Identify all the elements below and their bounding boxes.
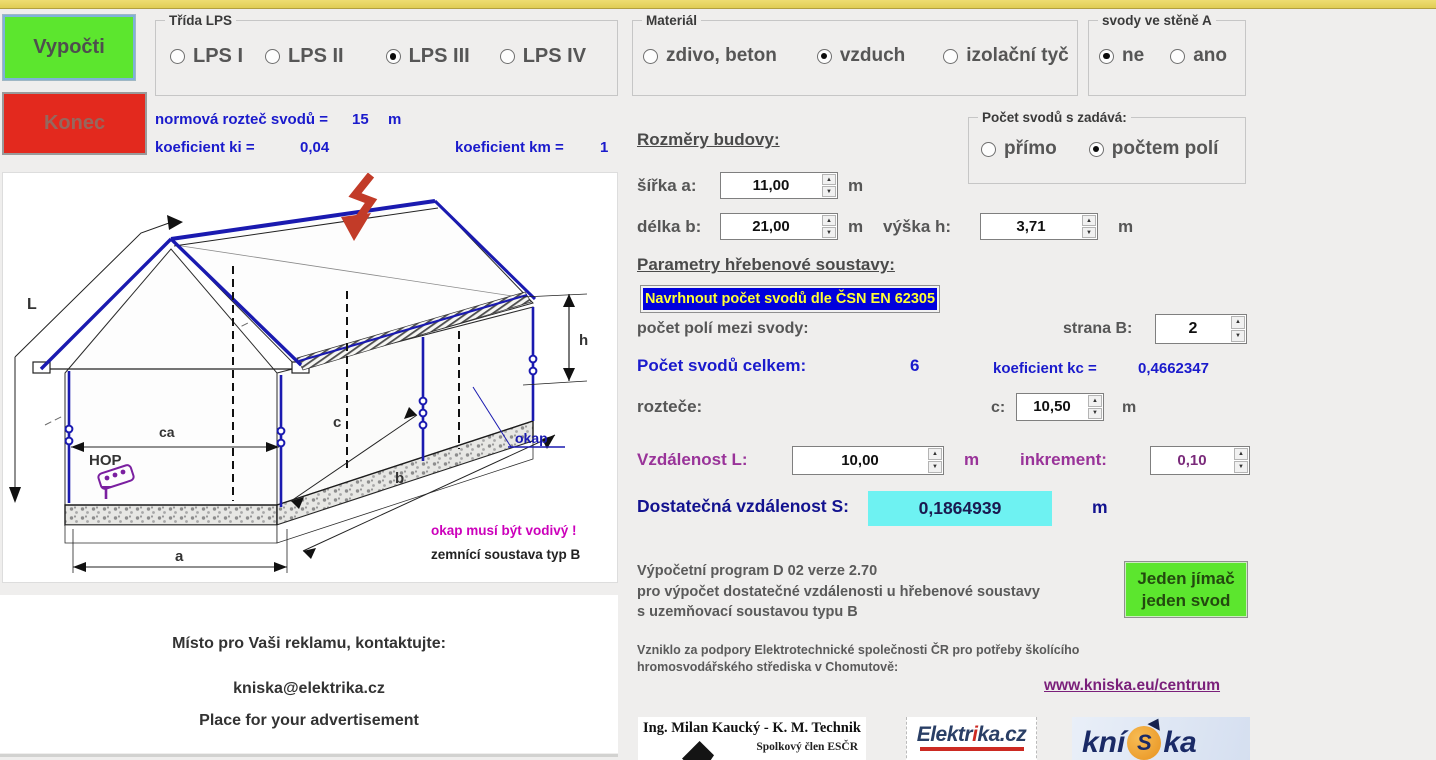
grounding-note: zemnící soustava typ B [431, 547, 581, 562]
radio-material-insulating-rod[interactable]: izolační tyč [943, 45, 1068, 67]
kniska-centrum-link[interactable]: www.kniska.eu/centrum [1044, 677, 1220, 695]
radio-label: počtem polí [1112, 138, 1219, 160]
bottom-divider [0, 754, 618, 757]
radio-icon [1089, 142, 1104, 157]
km-label: koeficient km = [455, 139, 564, 156]
width-spinner [821, 173, 837, 198]
spin-up-button[interactable] [1234, 448, 1248, 460]
program-line-2: pro výpočet dostatečné vzdálenosti u hře… [637, 584, 1040, 600]
app-window: Vypočti Konec Třída LPS LPS I LPS II LPS… [0, 0, 1436, 760]
side-b-value[interactable]: 2 [1156, 315, 1230, 343]
side-b-label: strana B: [1063, 320, 1132, 338]
width-unit: m [848, 176, 863, 196]
radio-mode-direct[interactable]: přímo [981, 138, 1057, 160]
separation-distance-unit: m [1092, 497, 1108, 518]
radio-label: přímo [1004, 138, 1057, 160]
spin-down-button[interactable] [1234, 461, 1248, 473]
building-diagram-panel: L h ca c b [2, 172, 618, 583]
height-input[interactable]: 3,71 [980, 213, 1098, 240]
c-label: c: [991, 399, 1005, 417]
support-line-1: Vzniklo za podpory Elektrotechnické spol… [637, 643, 1079, 657]
program-line-1: Výpočetní program D 02 verze 2.70 [637, 563, 877, 579]
kniska-ball-icon: S [1127, 726, 1161, 760]
increment-spinner [1233, 447, 1249, 474]
increment-value[interactable]: 0,10 [1151, 447, 1233, 474]
radio-material-air[interactable]: vzduch [817, 45, 905, 67]
height-value[interactable]: 3,71 [981, 214, 1081, 239]
radio-wall-no[interactable]: ne [1099, 45, 1144, 67]
radio-lps-iv[interactable]: LPS IV [500, 45, 586, 68]
exit-button[interactable]: Konec [2, 92, 147, 155]
elektrika-red-bar [920, 747, 1024, 751]
km-technik-title: Ing. Milan Kaucký - K. M. Technik [638, 717, 866, 737]
dim-L-label: L [27, 296, 37, 313]
ki-value: 0,04 [300, 139, 329, 156]
spin-down-button[interactable] [1231, 330, 1245, 343]
total-conductors-label: Počet svodů celkem: [637, 356, 806, 376]
length-value[interactable]: 21,00 [721, 214, 821, 239]
window-titlebar[interactable] [0, 0, 1436, 9]
increment-label: inkrement: [1020, 450, 1107, 470]
building-diagram: L h ca c b [3, 173, 617, 582]
separation-distance-label: Dostatečná vzdálenost S: [637, 496, 849, 517]
wall-conductors-group: svody ve stěně A ne ano [1088, 20, 1246, 96]
spin-down-button[interactable] [1082, 227, 1096, 238]
distance-l-input[interactable]: 10,00 [792, 446, 944, 475]
spin-down-button[interactable] [928, 461, 942, 473]
spin-up-button[interactable] [1231, 316, 1245, 329]
height-unit: m [1118, 217, 1133, 237]
radio-icon [265, 49, 280, 64]
kc-value: 0,4662347 [1138, 360, 1209, 377]
side-b-input[interactable]: 2 [1155, 314, 1247, 344]
radio-label: vzduch [840, 45, 905, 67]
propose-conductors-button[interactable]: Navrhnout počet svodů dle ČSN EN 62305 [640, 285, 940, 313]
spacings-label: rozteče: [637, 397, 702, 417]
kniska-wordmark: kní S ka [1082, 726, 1197, 760]
distance-l-unit: m [964, 450, 979, 470]
distance-l-spinner [927, 447, 943, 474]
dim-ca-label: ca [159, 424, 175, 440]
wall-conductors-legend: svody ve stěně A [1098, 13, 1216, 28]
radio-wall-yes[interactable]: ano [1170, 45, 1227, 67]
kniska-bird-icon [1148, 717, 1165, 731]
spin-up-button[interactable] [822, 215, 836, 226]
radio-label: LPS I [193, 45, 243, 68]
dim-a-label: a [175, 548, 184, 565]
radio-icon [170, 49, 185, 64]
compute-button[interactable]: Vypočti [2, 14, 136, 81]
length-label: délka b: [637, 217, 701, 237]
km-technik-subtitle: Spolkový člen ESČR [756, 741, 858, 753]
spin-up-button[interactable] [928, 448, 942, 460]
ad-contact-email: kniska@elektrika.cz [0, 680, 618, 698]
ridge-system-heading: Parametry hřebenové soustavy: [637, 255, 895, 275]
ad-line-3: Place for your advertisement [0, 712, 618, 730]
single-rod-line-2: jeden svod [1142, 590, 1231, 612]
radio-icon [981, 142, 996, 157]
elektrika-logo[interactable]: Elektrika.cz [906, 717, 1037, 760]
entry-mode-group: Počet svodů s zadává: přímo počtem polí [968, 117, 1246, 184]
lps-class-legend: Třída LPS [165, 13, 236, 28]
dim-b-label: b [395, 470, 404, 487]
km-technik-diamond-icon [682, 741, 714, 760]
program-description: Výpočetní program D 02 verze 2.70 pro vý… [637, 561, 1040, 623]
dim-c-label: c [333, 414, 341, 431]
hop-label: HOP [89, 452, 122, 469]
norm-spacing-label: normová rozteč svodů = [155, 111, 328, 128]
distance-l-value[interactable]: 10,00 [793, 447, 927, 474]
norm-spacing-value: 15 [352, 111, 369, 128]
elektrika-wordmark: Elektrika.cz [917, 723, 1027, 747]
norm-spacing-unit: m [388, 111, 401, 128]
radio-lps-i[interactable]: LPS I [170, 45, 243, 68]
side-b-spinner [1230, 315, 1246, 343]
radio-lps-ii[interactable]: LPS II [265, 45, 344, 68]
material-group: Materiál zdivo, beton vzduch izolační ty… [632, 20, 1078, 96]
lps-class-group: Třída LPS LPS I LPS II LPS III LPS IV [155, 20, 618, 96]
c-unit: m [1122, 399, 1136, 417]
entry-mode-legend: Počet svodů s zadává: [978, 110, 1131, 125]
gutter-note: okap musí být vodivý ! [431, 523, 577, 538]
dim-h-label: h [579, 332, 588, 349]
spin-up-button[interactable] [822, 174, 836, 185]
length-unit: m [848, 217, 863, 237]
height-label: výška h: [883, 217, 951, 237]
radio-icon [500, 49, 515, 64]
spin-up-button[interactable] [1082, 215, 1096, 226]
field-count-label: počet polí mezi svody: [637, 320, 809, 338]
width-input[interactable]: 11,00 [720, 172, 838, 199]
ad-line-1: Místo pro Vaši reklamu, kontaktujte: [0, 635, 618, 653]
okap-label: okap [515, 430, 548, 446]
radio-icon [943, 49, 958, 64]
radio-icon [643, 49, 658, 64]
single-rod-line-1: Jeden jímač [1137, 568, 1234, 590]
radio-icon [1170, 49, 1185, 64]
spin-up-button[interactable] [1088, 395, 1102, 407]
kc-label: koeficient kc = [993, 360, 1097, 377]
radio-label: ne [1122, 45, 1144, 67]
length-spinner [821, 214, 837, 239]
spin-down-button[interactable] [822, 186, 836, 197]
ki-label: koeficient ki = [155, 139, 255, 156]
increment-input[interactable]: 0,10 [1150, 446, 1250, 475]
width-value[interactable]: 11,00 [721, 173, 821, 198]
radio-material-masonry[interactable]: zdivo, beton [643, 45, 777, 67]
distance-l-label: Vzdálenost L: [637, 450, 748, 470]
advertisement-panel: Místo pro Vaši reklamu, kontaktujte: kni… [0, 595, 618, 753]
program-line-3: s uzemňovací soustavou typu B [637, 604, 858, 620]
length-input[interactable]: 21,00 [720, 213, 838, 240]
radio-label: LPS II [288, 45, 344, 68]
km-technik-logo[interactable]: Ing. Milan Kaucký - K. M. Technik Spolko… [638, 717, 866, 760]
radio-icon [386, 49, 401, 64]
radio-label: izolační tyč [966, 45, 1068, 67]
radio-label: ano [1193, 45, 1227, 67]
width-label: šířka a: [637, 176, 697, 196]
radio-icon [817, 49, 832, 64]
radio-label: LPS III [409, 45, 470, 68]
support-line-2: hromosvodářského střediska v Chomutově: [637, 660, 898, 674]
radio-mode-field-count[interactable]: počtem polí [1089, 138, 1219, 160]
radio-label: zdivo, beton [666, 45, 777, 67]
radio-icon [1099, 49, 1114, 64]
radio-label: LPS IV [523, 45, 586, 68]
total-conductors-value: 6 [910, 356, 919, 376]
support-note: Vzniklo za podpory Elektrotechnické spol… [637, 642, 1079, 676]
single-rod-button[interactable]: Jeden jímač jeden svod [1124, 561, 1248, 618]
material-legend: Materiál [642, 13, 701, 28]
km-value: 1 [600, 139, 608, 156]
separation-distance-result: 0,1864939 [868, 491, 1052, 526]
height-spinner [1081, 214, 1097, 239]
building-dimensions-heading: Rozměry budovy: [637, 130, 780, 150]
spin-down-button[interactable] [1088, 408, 1102, 420]
c-input[interactable]: 10,50 [1016, 393, 1104, 421]
spin-down-button[interactable] [822, 227, 836, 238]
kniska-logo[interactable]: kní S ka [1072, 717, 1250, 760]
c-value[interactable]: 10,50 [1017, 394, 1087, 420]
c-spinner [1087, 394, 1103, 420]
radio-lps-iii[interactable]: LPS III [386, 45, 470, 68]
